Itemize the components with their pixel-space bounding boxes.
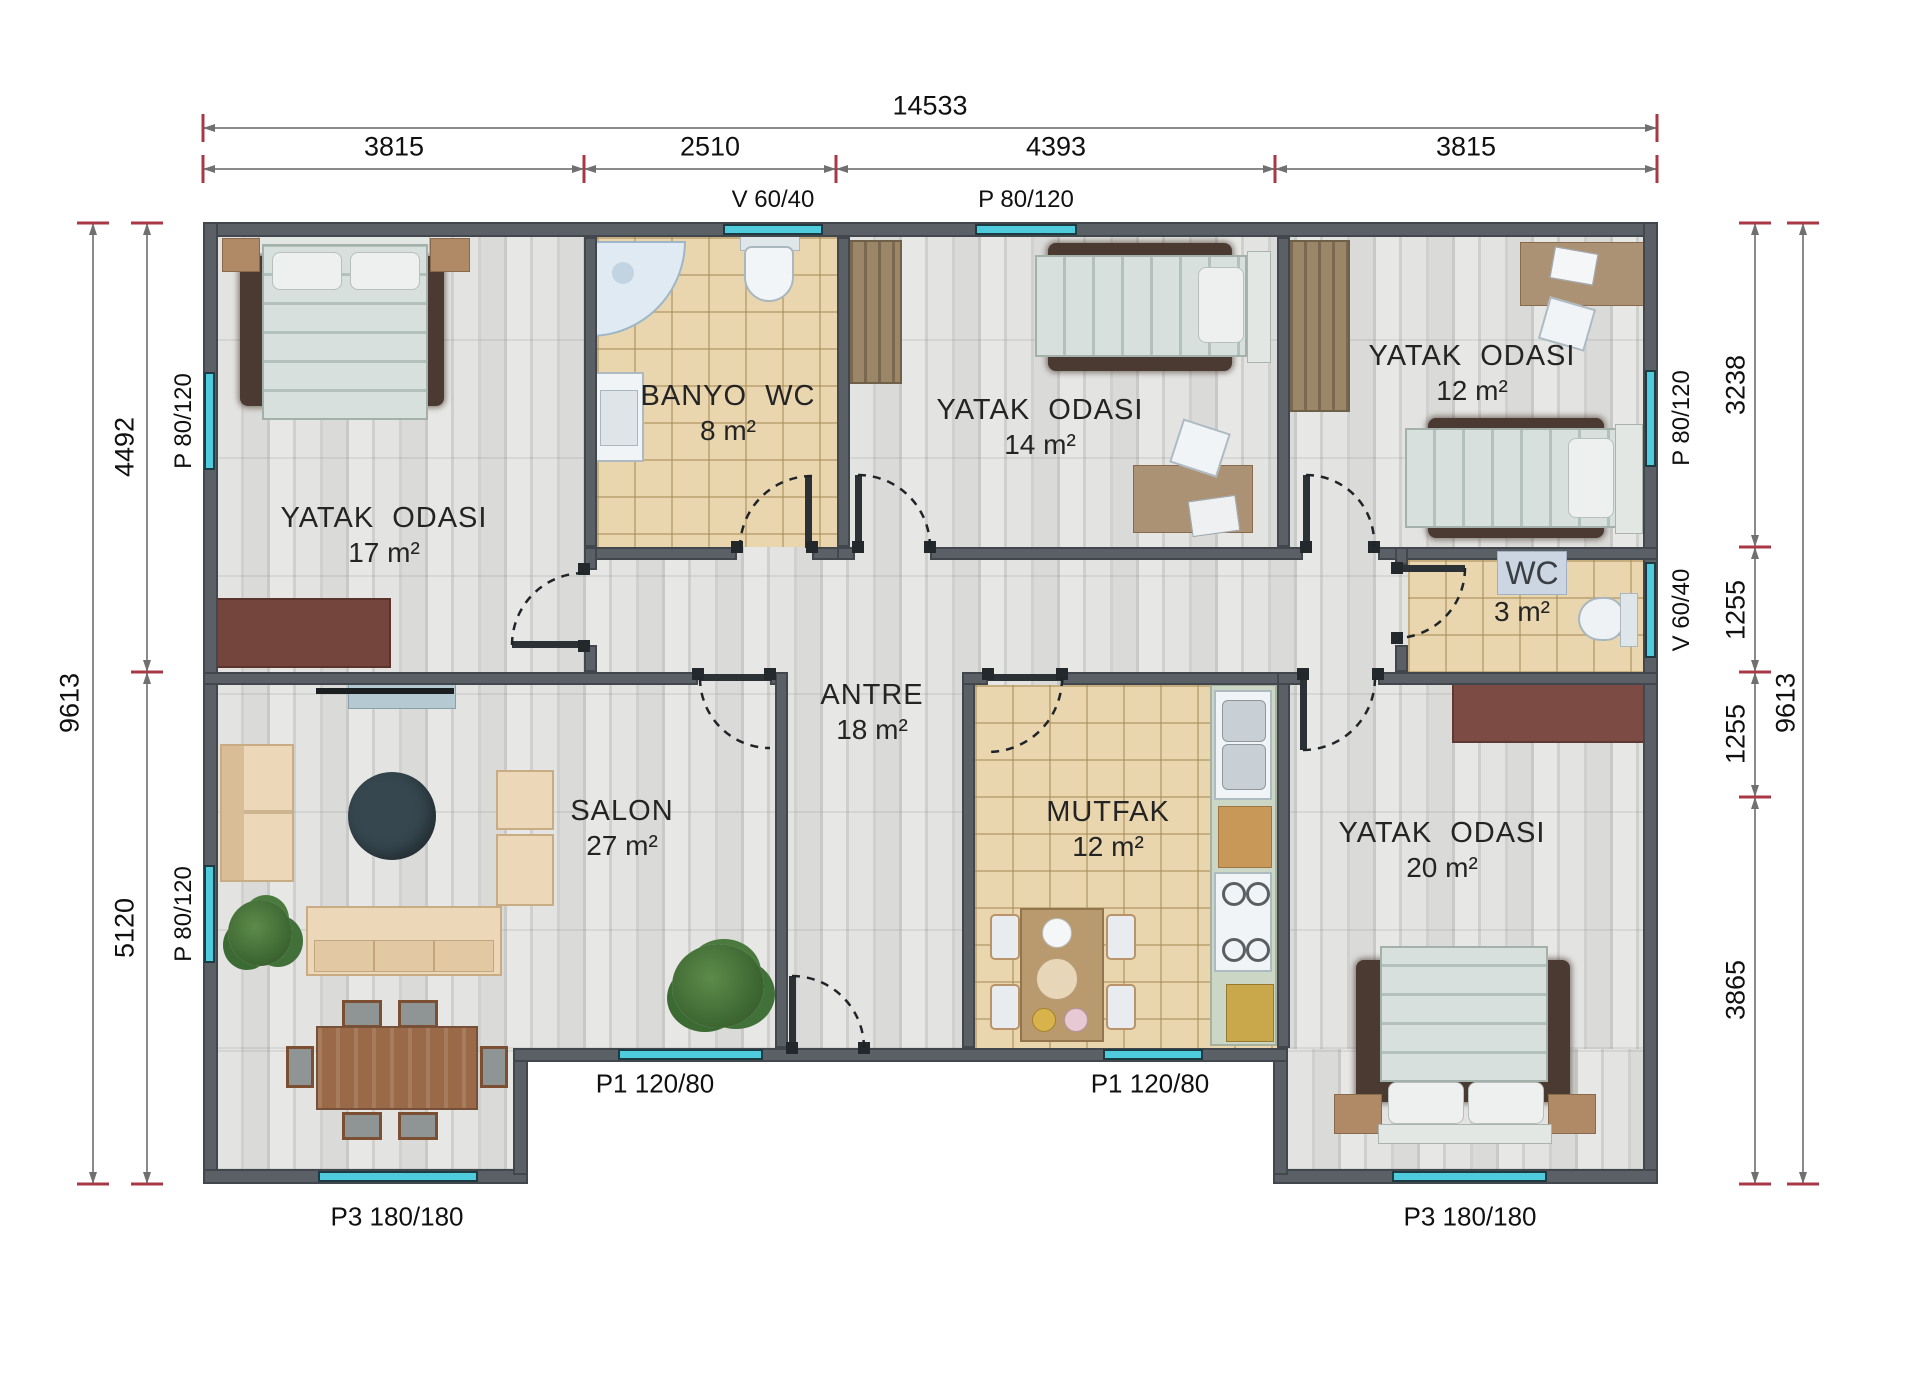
dim-top-total: 14533 bbox=[892, 91, 967, 122]
room-area: 27 m² bbox=[570, 830, 673, 864]
room-label-wc-area: 3 m² bbox=[1494, 595, 1550, 629]
label-window-p80120-right: P 80/120 bbox=[1668, 370, 1696, 466]
door-arc-kitchen bbox=[988, 678, 1062, 752]
dim-right-seg2: 1255 bbox=[1721, 580, 1752, 640]
dimension-and-door-overlay bbox=[0, 0, 1920, 1398]
room-label-bedroom20: YATAK ODASI 20 m² bbox=[1339, 816, 1546, 886]
dim-top-seg2: 2510 bbox=[680, 132, 740, 163]
room-name: BANYO WC bbox=[641, 379, 816, 414]
dim-top-seg4: 3815 bbox=[1436, 132, 1496, 163]
dim-right-total: 9613 bbox=[1771, 673, 1802, 733]
room-name: YATAK ODASI bbox=[1339, 816, 1546, 851]
dim-right-seg3: 1255 bbox=[1721, 704, 1752, 764]
room-area: 14 m² bbox=[937, 429, 1144, 463]
label-window-p1-kitchen: P1 120/80 bbox=[1091, 1069, 1210, 1100]
room-label-kitchen: MUTFAK 12 m² bbox=[1046, 795, 1170, 865]
dim-left-total: 9613 bbox=[55, 673, 86, 733]
dim-top-seg3: 4393 bbox=[1026, 132, 1086, 163]
dim-right-seg4: 3865 bbox=[1721, 960, 1752, 1020]
label-window-p3-bedroom20: P3 180/180 bbox=[1403, 1202, 1536, 1233]
door-arc-bedroom12 bbox=[1306, 475, 1374, 547]
floor-plan: 14533 3815 2510 4393 3815 V 60/40 P 80/1… bbox=[0, 0, 1920, 1398]
dim-right-seg1: 3238 bbox=[1721, 355, 1752, 415]
door-arc-entrance bbox=[792, 976, 864, 1048]
dim-left-seg2: 5120 bbox=[110, 898, 141, 958]
label-window-v6040-right: V 60/40 bbox=[1668, 569, 1696, 652]
room-label-bathroom: BANYO WC 8 m² bbox=[641, 379, 816, 449]
label-window-p1-salon: P1 120/80 bbox=[596, 1069, 715, 1100]
door-arc-bedroom17 bbox=[512, 573, 584, 645]
label-window-p80120-top: P 80/120 bbox=[978, 186, 1074, 214]
room-name: MUTFAK bbox=[1046, 795, 1170, 830]
room-label-hall: ANTRE 18 m² bbox=[820, 678, 923, 748]
dim-top-seg1: 3815 bbox=[364, 132, 424, 163]
room-area: 17 m² bbox=[281, 537, 488, 571]
room-name: YATAK ODASI bbox=[937, 393, 1144, 428]
room-label-bedroom12: YATAK ODASI 12 m² bbox=[1369, 339, 1576, 409]
door-arc-bedroom20 bbox=[1303, 678, 1375, 750]
label-window-v6040-top: V 60/40 bbox=[732, 186, 815, 214]
room-area: 20 m² bbox=[1339, 852, 1546, 886]
door-arc-bathroom bbox=[740, 476, 812, 548]
room-name: YATAK ODASI bbox=[1369, 339, 1576, 374]
door-arc-salon bbox=[700, 678, 770, 748]
dim-left-seg1: 4492 bbox=[110, 417, 141, 477]
wc-sign-plaque: WC bbox=[1497, 551, 1567, 595]
room-name: YATAK ODASI bbox=[281, 501, 488, 536]
room-area: 18 m² bbox=[820, 714, 923, 748]
room-label-salon: SALON 27 m² bbox=[570, 794, 673, 864]
label-window-p80120-left1: P 80/120 bbox=[170, 373, 198, 469]
door-arc-bedroom14 bbox=[858, 475, 930, 547]
room-area: 3 m² bbox=[1494, 595, 1550, 629]
room-area: 12 m² bbox=[1046, 831, 1170, 865]
room-name: ANTRE bbox=[820, 678, 923, 713]
room-area: 12 m² bbox=[1369, 375, 1576, 409]
room-area: 8 m² bbox=[641, 415, 816, 449]
label-window-p3-salon: P3 180/180 bbox=[330, 1202, 463, 1233]
label-window-p80120-left2: P 80/120 bbox=[170, 866, 198, 962]
room-name: WC bbox=[1505, 555, 1558, 592]
room-label-bedroom14: YATAK ODASI 14 m² bbox=[937, 393, 1144, 463]
room-label-bedroom17: YATAK ODASI 17 m² bbox=[281, 501, 488, 571]
door-arc-wc bbox=[1399, 568, 1465, 638]
room-name: SALON bbox=[570, 794, 673, 829]
